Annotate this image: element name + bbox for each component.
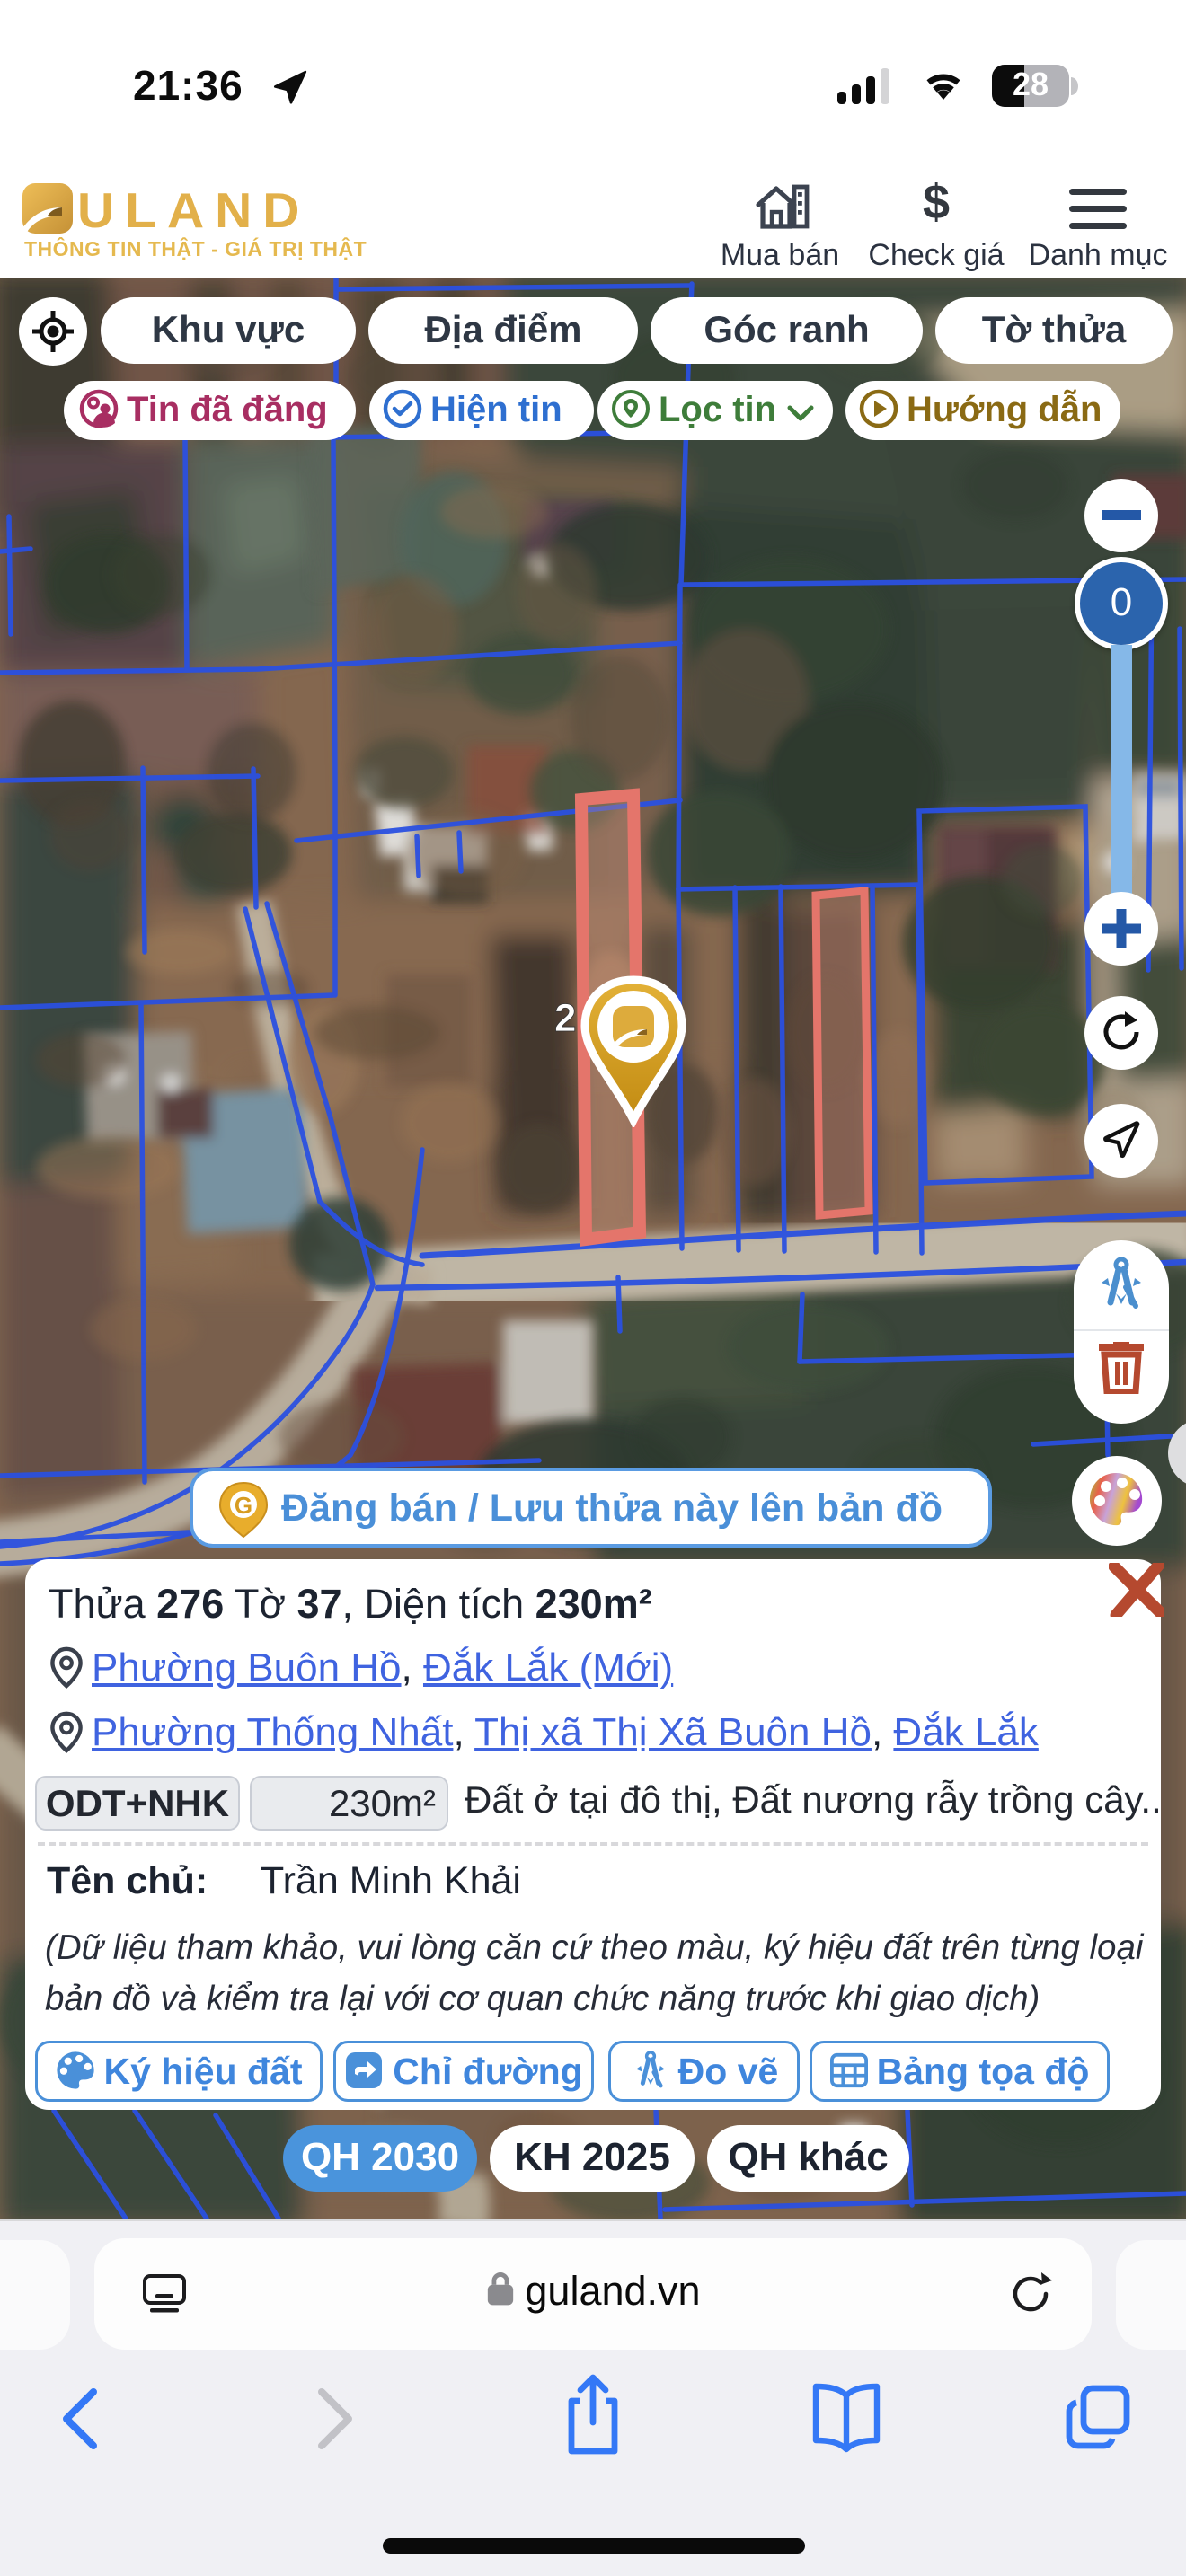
svg-text:2: 2 [554, 996, 576, 1040]
svg-text:G: G [235, 1492, 252, 1519]
